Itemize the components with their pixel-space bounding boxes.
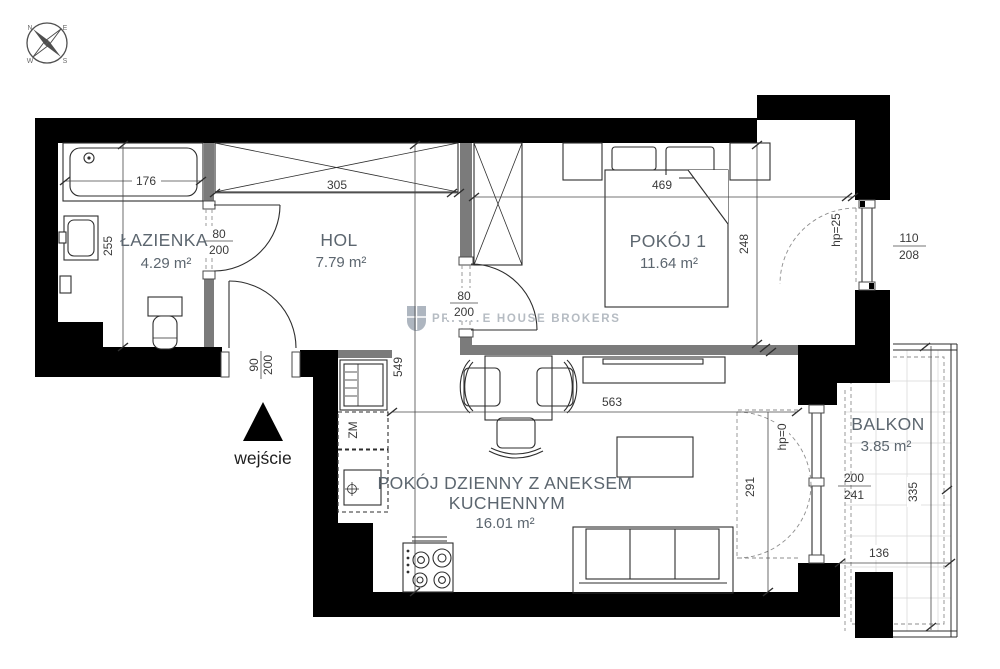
dining-chair-right <box>537 360 577 413</box>
bathroom-area: 4.29 m² <box>141 255 192 272</box>
window-w: 110 <box>899 231 918 245</box>
kitchen-sink-unit <box>340 360 387 410</box>
balcony-door-h: 241 <box>844 488 864 502</box>
entrance-label: wejście <box>233 448 291 468</box>
closet <box>474 143 522 265</box>
bed <box>605 147 728 307</box>
room1-door-size: 80 200 <box>447 288 481 320</box>
entrance-door <box>229 281 296 348</box>
dim-room1-width: 469 <box>652 178 672 192</box>
room1-name: POKÓJ 1 <box>630 230 707 251</box>
hall-name: HOL <box>320 230 357 250</box>
nightstand-right <box>730 143 770 180</box>
stove <box>403 537 453 592</box>
dim-room1-depth: 248 <box>737 234 751 254</box>
dim-bath-depth: 255 <box>101 236 115 256</box>
dim-living-depth: 291 <box>743 477 757 497</box>
window-sill-height: hp=25 <box>829 213 843 247</box>
radiator <box>60 276 71 293</box>
watermark-logo-icon <box>407 306 426 331</box>
room1-door-h: 200 <box>454 305 474 319</box>
living-name-line2: KUCHENNYM <box>449 493 565 513</box>
living-area: 16.01 m² <box>475 515 534 532</box>
dim-balcony-len: 335 <box>906 482 920 502</box>
entrance-door-w: 90 <box>247 358 261 372</box>
compass-s: S <box>63 58 68 65</box>
compass-icon: N E W S <box>27 23 68 65</box>
bath-door-h: 200 <box>209 243 229 257</box>
coffee-table <box>617 437 693 477</box>
compass-n: N <box>27 25 32 32</box>
hall-area: 7.79 m² <box>316 254 367 271</box>
entrance-marker: wejście <box>233 402 291 468</box>
dishwasher-label: ZM <box>346 421 360 438</box>
compass-e: E <box>63 25 68 32</box>
nightstand-left <box>563 143 602 180</box>
dining-chair-left <box>460 360 500 413</box>
room1-door-w: 80 <box>457 289 471 303</box>
dim-hall-width: 305 <box>327 178 347 192</box>
sofa <box>573 527 733 593</box>
dim-living-width: 563 <box>602 395 622 409</box>
floorplan-drawing: ZM <box>0 0 1000 664</box>
window-h: 208 <box>899 248 919 262</box>
toilet <box>148 297 182 349</box>
balcony-name: BALKON <box>851 414 924 434</box>
dining-chair-bottom <box>489 418 543 458</box>
balcony-door-w: 200 <box>844 471 864 485</box>
tv-cabinet <box>583 357 725 383</box>
room1-furniture <box>474 143 770 307</box>
balcony-door-sill: hp=0 <box>775 423 789 450</box>
living-name-line1: POKÓJ DZIENNY Z ANEKSEM <box>378 472 633 493</box>
dim-balcony-wid: 136 <box>869 546 889 560</box>
dim-tub: 176 <box>136 174 156 188</box>
dishwasher: ZM <box>338 412 388 449</box>
bathroom-name: ŁAZIENKA <box>120 230 208 250</box>
bath-door-w: 80 <box>212 227 226 241</box>
balcony-area: 3.85 m² <box>861 438 912 455</box>
room1-area: 11.64 m² <box>640 255 698 272</box>
entrance-door-size: 90 200 <box>247 349 276 381</box>
washbasin <box>59 216 98 260</box>
dim-run: 549 <box>391 357 405 377</box>
doors <box>206 205 537 348</box>
floorplan-page: ZM <box>0 0 1000 664</box>
compass-w: W <box>27 58 34 65</box>
dining-table <box>485 356 552 420</box>
entrance-arrow-icon <box>243 402 283 441</box>
watermark: PRIVATE HOUSE BROKERS <box>407 306 621 331</box>
entrance-door-h: 200 <box>261 355 275 375</box>
